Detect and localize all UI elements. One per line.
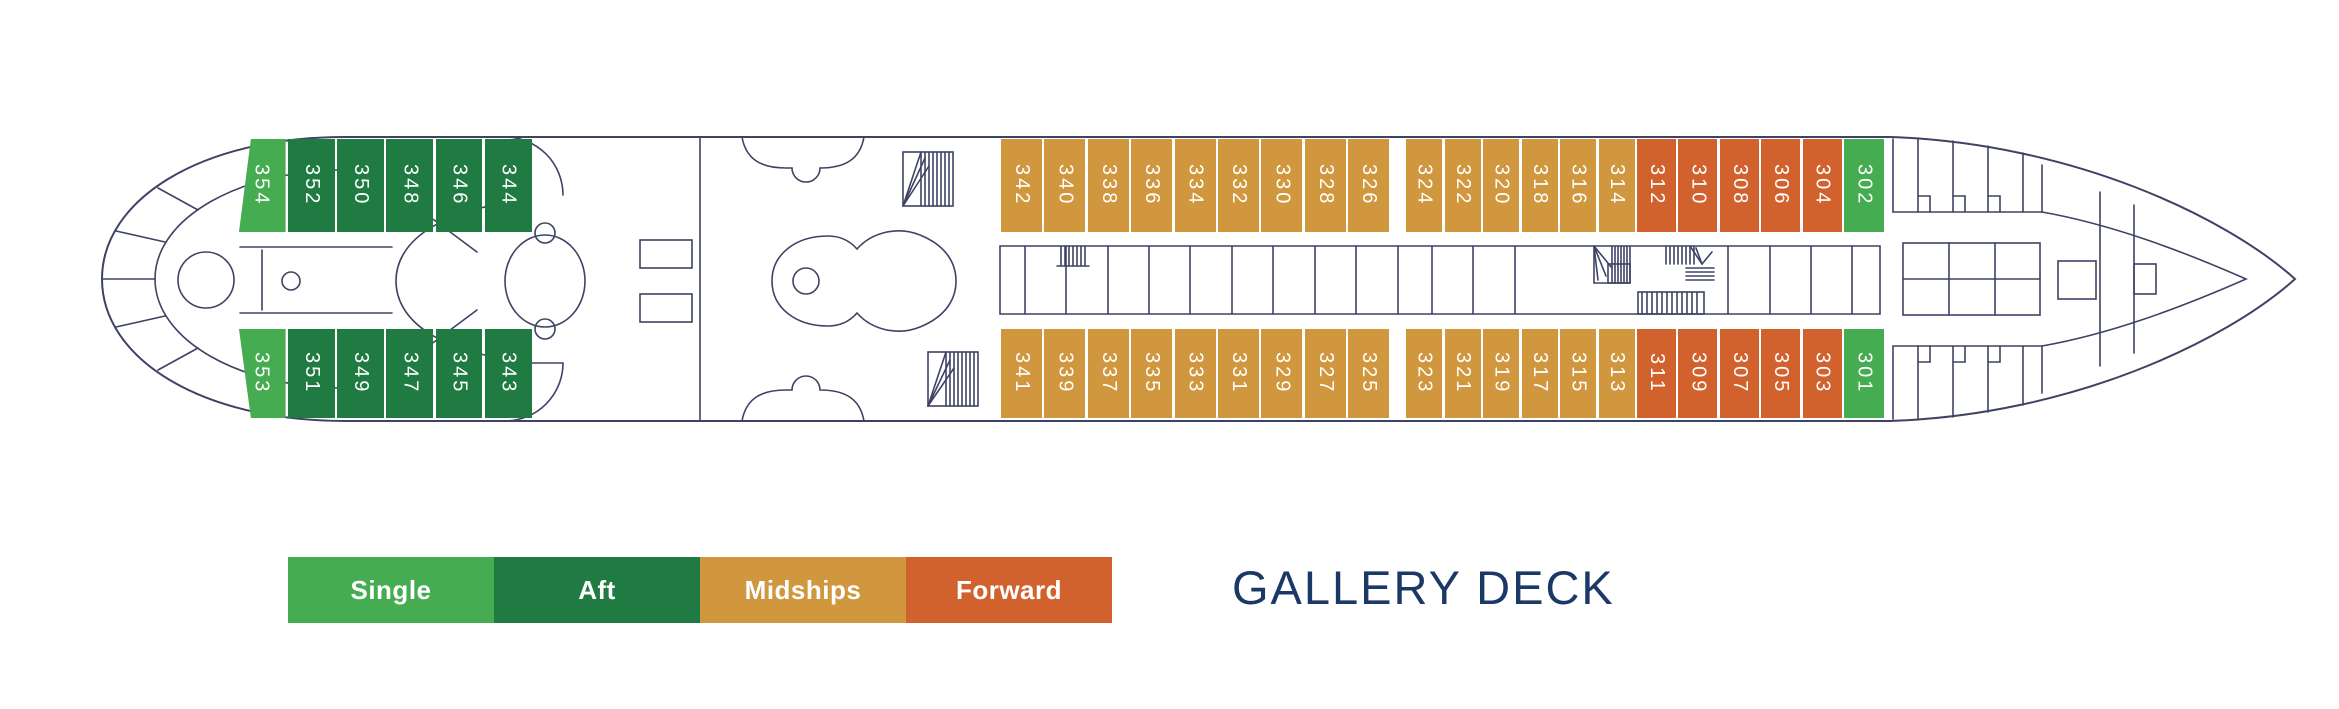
cabin-number: 320 — [1490, 164, 1513, 206]
legend-item-single: Single — [288, 557, 494, 623]
cabin-number: 333 — [1184, 352, 1207, 394]
cabin-number: 347 — [398, 352, 421, 394]
cabin-number: 305 — [1769, 352, 1792, 394]
cabin-number: 336 — [1140, 164, 1163, 206]
cabin-315[interactable]: 315 — [1560, 329, 1596, 418]
cabin-316[interactable]: 316 — [1560, 139, 1596, 232]
cabin-314[interactable]: 314 — [1599, 139, 1635, 232]
cabin-number: 350 — [349, 164, 372, 206]
cabin-306[interactable]: 306 — [1761, 139, 1800, 232]
cabin-349[interactable]: 349 — [337, 329, 384, 418]
cabin-342[interactable]: 342 — [1001, 139, 1042, 232]
cabin-number: 346 — [447, 164, 470, 206]
cabin-312[interactable]: 312 — [1637, 139, 1676, 232]
cabin-318[interactable]: 318 — [1522, 139, 1558, 232]
cabin-353[interactable]: 353 — [236, 329, 286, 418]
cabin-335[interactable]: 335 — [1131, 329, 1172, 418]
cabin-330[interactable]: 330 — [1261, 139, 1302, 232]
legend-label: Midships — [745, 575, 862, 606]
cabin-number: 341 — [1010, 352, 1033, 394]
cabin-326[interactable]: 326 — [1348, 139, 1389, 232]
cabin-345[interactable]: 345 — [436, 329, 483, 418]
cabin-number: 306 — [1769, 164, 1792, 206]
deck-plan: 3543523503483463443423403383363343323303… — [0, 0, 2339, 709]
cabin-321[interactable]: 321 — [1445, 329, 1481, 418]
cabin-number: 311 — [1645, 353, 1668, 394]
cabin-number: 329 — [1270, 352, 1293, 394]
cabin-310[interactable]: 310 — [1678, 139, 1717, 232]
cabin-351[interactable]: 351 — [288, 329, 335, 418]
cabin-number: 301 — [1852, 352, 1875, 394]
cabin-number: 351 — [300, 352, 323, 394]
legend-item-aft: Aft — [494, 557, 700, 623]
cabin-337[interactable]: 337 — [1088, 329, 1129, 418]
cabin-number: 342 — [1010, 164, 1033, 206]
cabin-number: 307 — [1728, 352, 1751, 394]
cabin-number: 330 — [1270, 164, 1293, 206]
cabin-number: 337 — [1097, 352, 1120, 394]
cabin-number: 325 — [1357, 352, 1380, 394]
legend-item-midships: Midships — [700, 557, 906, 623]
cabin-number: 318 — [1528, 164, 1551, 206]
deck-title: GALLERY DECK — [1232, 560, 1615, 615]
cabin-number: 322 — [1451, 164, 1474, 206]
cabin-332[interactable]: 332 — [1218, 139, 1259, 232]
cabin-350[interactable]: 350 — [337, 139, 384, 232]
cabin-number: 332 — [1227, 164, 1250, 206]
cabin-number: 304 — [1811, 164, 1834, 206]
cabin-346[interactable]: 346 — [436, 139, 483, 232]
cabin-329[interactable]: 329 — [1261, 329, 1302, 418]
cabin-343[interactable]: 343 — [485, 329, 532, 418]
legend-label: Forward — [956, 575, 1062, 606]
cabin-number: 312 — [1645, 164, 1668, 206]
cabin-301[interactable]: 301 — [1844, 329, 1884, 418]
cabin-319[interactable]: 319 — [1483, 329, 1519, 418]
cabin-327[interactable]: 327 — [1305, 329, 1346, 418]
cabin-309[interactable]: 309 — [1678, 329, 1717, 418]
legend: SingleAftMidshipsForward — [288, 557, 1112, 623]
cabin-number: 338 — [1097, 164, 1120, 206]
cabin-number: 323 — [1413, 352, 1436, 394]
cabin-number: 335 — [1140, 352, 1163, 394]
cabin-305[interactable]: 305 — [1761, 329, 1800, 418]
cabin-number: 316 — [1567, 164, 1590, 206]
cabin-number: 317 — [1528, 352, 1551, 394]
cabin-number: 326 — [1357, 164, 1380, 206]
cabin-number: 303 — [1811, 352, 1834, 394]
cabin-number: 345 — [447, 352, 470, 394]
cabin-number: 308 — [1728, 164, 1751, 206]
cabin-number: 331 — [1227, 352, 1250, 394]
cabin-number: 354 — [249, 164, 272, 206]
cabin-number: 315 — [1567, 352, 1590, 394]
cabin-number: 353 — [249, 352, 272, 394]
cabin-317[interactable]: 317 — [1522, 329, 1558, 418]
cabin-302[interactable]: 302 — [1844, 139, 1884, 232]
cabin-number: 327 — [1314, 352, 1337, 394]
cabin-336[interactable]: 336 — [1131, 139, 1172, 232]
legend-label: Aft — [578, 575, 616, 606]
cabin-340[interactable]: 340 — [1044, 139, 1085, 232]
cabin-333[interactable]: 333 — [1175, 329, 1216, 418]
cabin-347[interactable]: 347 — [386, 329, 433, 418]
cabin-304[interactable]: 304 — [1803, 139, 1842, 232]
cabin-number: 302 — [1852, 164, 1875, 206]
cabin-339[interactable]: 339 — [1044, 329, 1085, 418]
cabin-331[interactable]: 331 — [1218, 329, 1259, 418]
cabin-number: 314 — [1605, 164, 1628, 206]
cabin-338[interactable]: 338 — [1088, 139, 1129, 232]
cabin-number: 334 — [1184, 164, 1207, 206]
legend-item-forward: Forward — [906, 557, 1112, 623]
legend-label: Single — [350, 575, 431, 606]
cabin-354[interactable]: 354 — [236, 139, 286, 232]
cabin-number: 348 — [398, 164, 421, 206]
cabin-325[interactable]: 325 — [1348, 329, 1389, 418]
cabin-322[interactable]: 322 — [1445, 139, 1481, 232]
cabin-number: 313 — [1605, 352, 1628, 394]
cabin-number: 339 — [1053, 352, 1076, 394]
cabin-number: 310 — [1686, 164, 1709, 206]
cabin-344[interactable]: 344 — [485, 139, 532, 232]
cabin-341[interactable]: 341 — [1001, 329, 1042, 418]
cabin-334[interactable]: 334 — [1175, 139, 1216, 232]
cabin-number: 343 — [497, 352, 520, 394]
cabin-323[interactable]: 323 — [1406, 329, 1442, 418]
cabin-320[interactable]: 320 — [1483, 139, 1519, 232]
cabin-number: 319 — [1490, 352, 1513, 394]
cabin-313[interactable]: 313 — [1599, 329, 1635, 418]
cabin-348[interactable]: 348 — [386, 139, 433, 232]
cabin-307[interactable]: 307 — [1720, 329, 1759, 418]
cabin-311[interactable]: 311 — [1637, 329, 1676, 418]
cabin-number: 349 — [349, 352, 372, 394]
cabin-352[interactable]: 352 — [288, 139, 335, 232]
cabin-324[interactable]: 324 — [1406, 139, 1442, 232]
cabin-308[interactable]: 308 — [1720, 139, 1759, 232]
cabin-number: 321 — [1451, 352, 1474, 394]
cabin-number: 324 — [1413, 164, 1436, 206]
cabin-number: 344 — [497, 164, 520, 206]
cabin-number: 309 — [1686, 352, 1709, 394]
cabin-303[interactable]: 303 — [1803, 329, 1842, 418]
cabin-number: 328 — [1314, 164, 1337, 206]
cabin-number: 352 — [300, 164, 323, 206]
cabin-328[interactable]: 328 — [1305, 139, 1346, 232]
cabin-number: 340 — [1053, 164, 1076, 206]
